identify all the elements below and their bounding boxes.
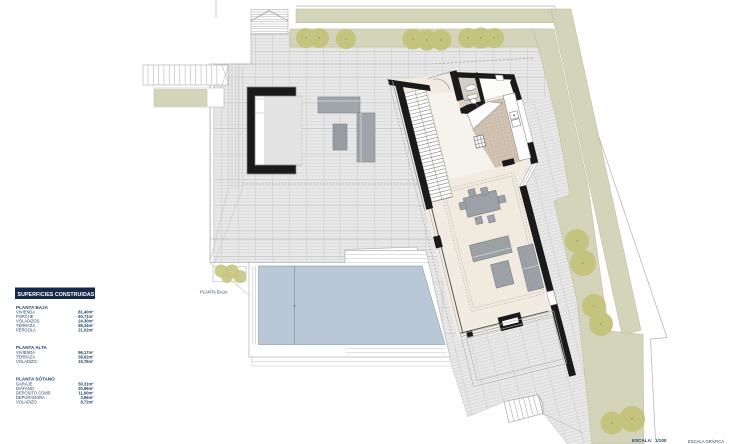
svg-text:19,76m²: 19,76m² [78,359,94,364]
svg-text:VOLADIZO: VOLADIZO [16,400,37,405]
svg-text:PLANTA BAJA: PLANTA BAJA [200,290,228,295]
svg-text:VOLADIZO: VOLADIZO [16,359,37,364]
svg-text:21,02m²: 21,02m² [78,328,94,333]
svg-text:SUPERFICIES CONSTRUIDAS: SUPERFICIES CONSTRUIDAS [18,292,95,298]
svg-text:ESCALA: 1/100: ESCALA: 1/100 [632,438,667,443]
svg-text:ESCALA GRÁFICA: ESCALA GRÁFICA [688,439,724,444]
svg-text:PÉRGOLA: PÉRGOLA [16,328,36,333]
svg-text:8,72m²: 8,72m² [81,400,95,405]
